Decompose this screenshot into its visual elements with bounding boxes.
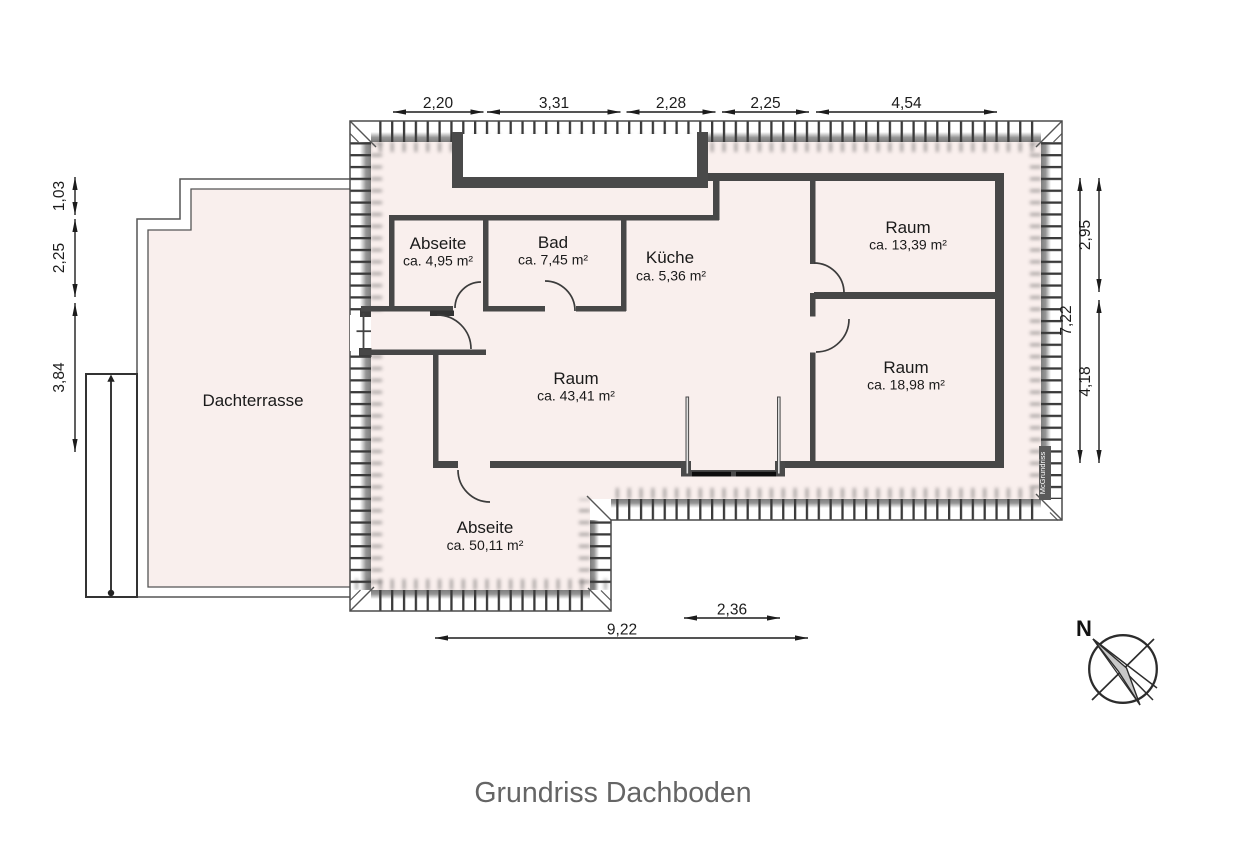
svg-text:Dachterrasse: Dachterrasse [202,391,303,410]
svg-text:Grundriss Dachboden: Grundriss Dachboden [474,777,751,809]
svg-text:ca. 43,41 m²: ca. 43,41 m² [537,388,615,404]
svg-text:McGrundriss: McGrundriss [1038,452,1047,495]
svg-text:ca. 18,98 m²: ca. 18,98 m² [867,377,945,393]
svg-text:3,84: 3,84 [51,362,68,393]
svg-text:9,22: 9,22 [607,622,637,639]
svg-text:2,36: 2,36 [717,602,747,619]
svg-text:1,03: 1,03 [51,181,68,211]
svg-text:ca. 5,36 m²: ca. 5,36 m² [636,268,706,284]
svg-text:4,54: 4,54 [891,95,922,112]
svg-text:Abseite: Abseite [457,518,514,537]
svg-text:Bad: Bad [538,233,568,252]
svg-text:ca. 7,45 m²: ca. 7,45 m² [518,252,588,268]
svg-text:Raum: Raum [885,218,930,237]
svg-text:Küche: Küche [646,248,694,267]
svg-text:ca. 4,95 m²: ca. 4,95 m² [403,253,473,269]
svg-text:2,25: 2,25 [750,95,780,112]
svg-text:4,18: 4,18 [1077,366,1094,396]
svg-text:2,95: 2,95 [1077,220,1094,250]
svg-text:2,28: 2,28 [656,95,686,112]
svg-text:N: N [1076,616,1092,641]
svg-text:Raum: Raum [553,369,598,388]
svg-text:7,22: 7,22 [1058,305,1075,335]
svg-text:Raum: Raum [883,358,928,377]
svg-text:2,20: 2,20 [423,95,454,112]
svg-text:ca. 13,39 m²: ca. 13,39 m² [869,237,947,253]
svg-text:3,31: 3,31 [539,95,569,112]
svg-text:Abseite: Abseite [410,234,467,253]
svg-text:ca. 50,11 m²: ca. 50,11 m² [447,537,524,553]
svg-text:2,25: 2,25 [51,243,68,273]
